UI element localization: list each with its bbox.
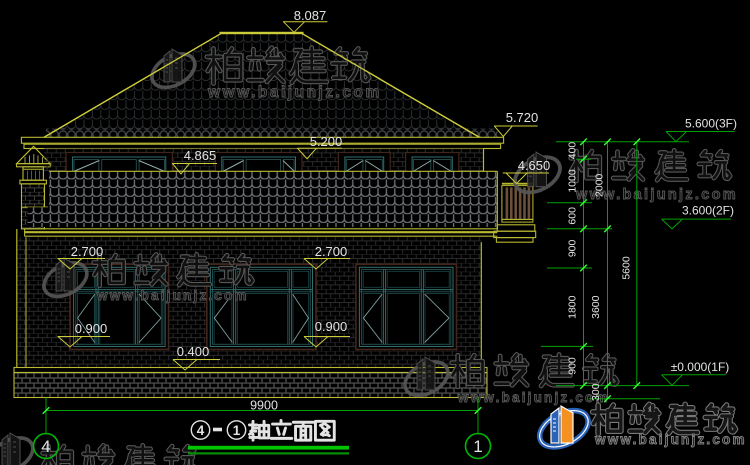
svg-text:5.200: 5.200 xyxy=(310,134,343,149)
svg-text:900: 900 xyxy=(567,239,579,257)
svg-text:8.087: 8.087 xyxy=(294,8,327,23)
svg-text:3.600(2F): 3.600(2F) xyxy=(682,204,734,218)
svg-text:1800: 1800 xyxy=(567,295,579,319)
svg-text:5600: 5600 xyxy=(621,256,633,280)
svg-text:300: 300 xyxy=(590,383,602,401)
svg-text:www.baijunjz.com: www.baijunjz.com xyxy=(96,288,249,303)
svg-text:www.baijunjz.com: www.baijunjz.com xyxy=(207,84,382,101)
svg-text:1: 1 xyxy=(473,437,482,456)
svg-text:3600: 3600 xyxy=(590,295,602,319)
svg-text:400: 400 xyxy=(567,142,579,160)
svg-text:www.baijunjz.com: www.baijunjz.com xyxy=(457,390,610,405)
svg-text:2.700: 2.700 xyxy=(315,244,348,259)
svg-text:2.700: 2.700 xyxy=(71,244,104,259)
svg-text:600: 600 xyxy=(567,207,579,225)
svg-text:5.720: 5.720 xyxy=(506,110,539,125)
svg-text:0.900: 0.900 xyxy=(75,321,108,336)
svg-text:1: 1 xyxy=(233,423,241,438)
svg-text:1000: 1000 xyxy=(567,169,579,193)
svg-text:4: 4 xyxy=(41,437,50,456)
svg-text:0.400: 0.400 xyxy=(177,344,210,359)
svg-text:900: 900 xyxy=(567,357,579,375)
svg-text:5.600(3F): 5.600(3F) xyxy=(685,117,737,131)
svg-text:0.900: 0.900 xyxy=(315,319,348,334)
svg-text:9900: 9900 xyxy=(250,399,278,413)
svg-text:4.865: 4.865 xyxy=(184,148,217,163)
svg-text:4.650: 4.650 xyxy=(518,158,551,173)
svg-text:www.baijunjz.com: www.baijunjz.com xyxy=(594,432,747,447)
svg-text:±0.000(1F): ±0.000(1F) xyxy=(671,360,730,374)
svg-text:4: 4 xyxy=(197,423,205,438)
svg-text:2000: 2000 xyxy=(594,173,606,197)
